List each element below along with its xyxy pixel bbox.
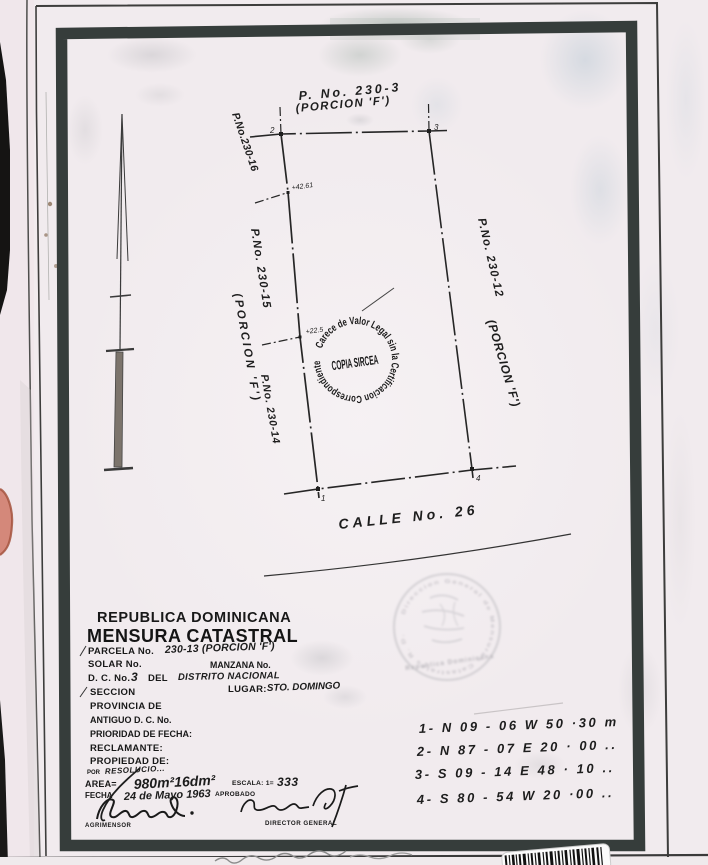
svg-text:REPUBLICA DOMINICANA: REPUBLICA DOMINICANA [97, 610, 291, 626]
svg-text:ESCALA: 1=: ESCALA: 1= [232, 780, 274, 787]
svg-text:PROVINCIA DE: PROVINCIA DE [90, 701, 162, 712]
svg-text:LUGAR:: LUGAR: [228, 684, 267, 695]
svg-text:RECLAMANTE:: RECLAMANTE: [90, 743, 163, 754]
svg-text:ANTIGUO D. C. No.: ANTIGUO D. C. No. [90, 715, 172, 725]
svg-text:4: 4 [476, 474, 481, 483]
svg-text:MANZANA No.: MANZANA No. [210, 660, 271, 670]
svg-text:2: 2 [269, 126, 275, 135]
svg-text:SECCION: SECCION [90, 687, 135, 698]
svg-text:SOLAR No.: SOLAR No. [88, 659, 142, 670]
svg-text:PARCELA No.: PARCELA No. [88, 646, 154, 657]
svg-text:1: 1 [321, 494, 325, 503]
svg-text:PRIORIDAD DE FECHA:: PRIORIDAD DE FECHA: [90, 729, 192, 739]
svg-text:AGRIMENSOR: AGRIMENSOR [85, 823, 132, 829]
svg-text:DISTRITO NACIONAL: DISTRITO NACIONAL [178, 670, 280, 683]
svg-text:DIRECTOR GENERAL: DIRECTOR GENERAL [265, 820, 337, 827]
svg-text:3: 3 [434, 123, 439, 132]
svg-text:POR: POR [87, 770, 101, 776]
svg-text:3: 3 [131, 670, 138, 684]
svg-text:333: 333 [277, 775, 299, 789]
svg-text:DEL: DEL [148, 673, 168, 684]
svg-text:APROBADO: APROBADO [215, 791, 255, 798]
svg-text:AREA=: AREA= [85, 779, 117, 789]
svg-text:D. C. No.: D. C. No. [88, 673, 130, 684]
